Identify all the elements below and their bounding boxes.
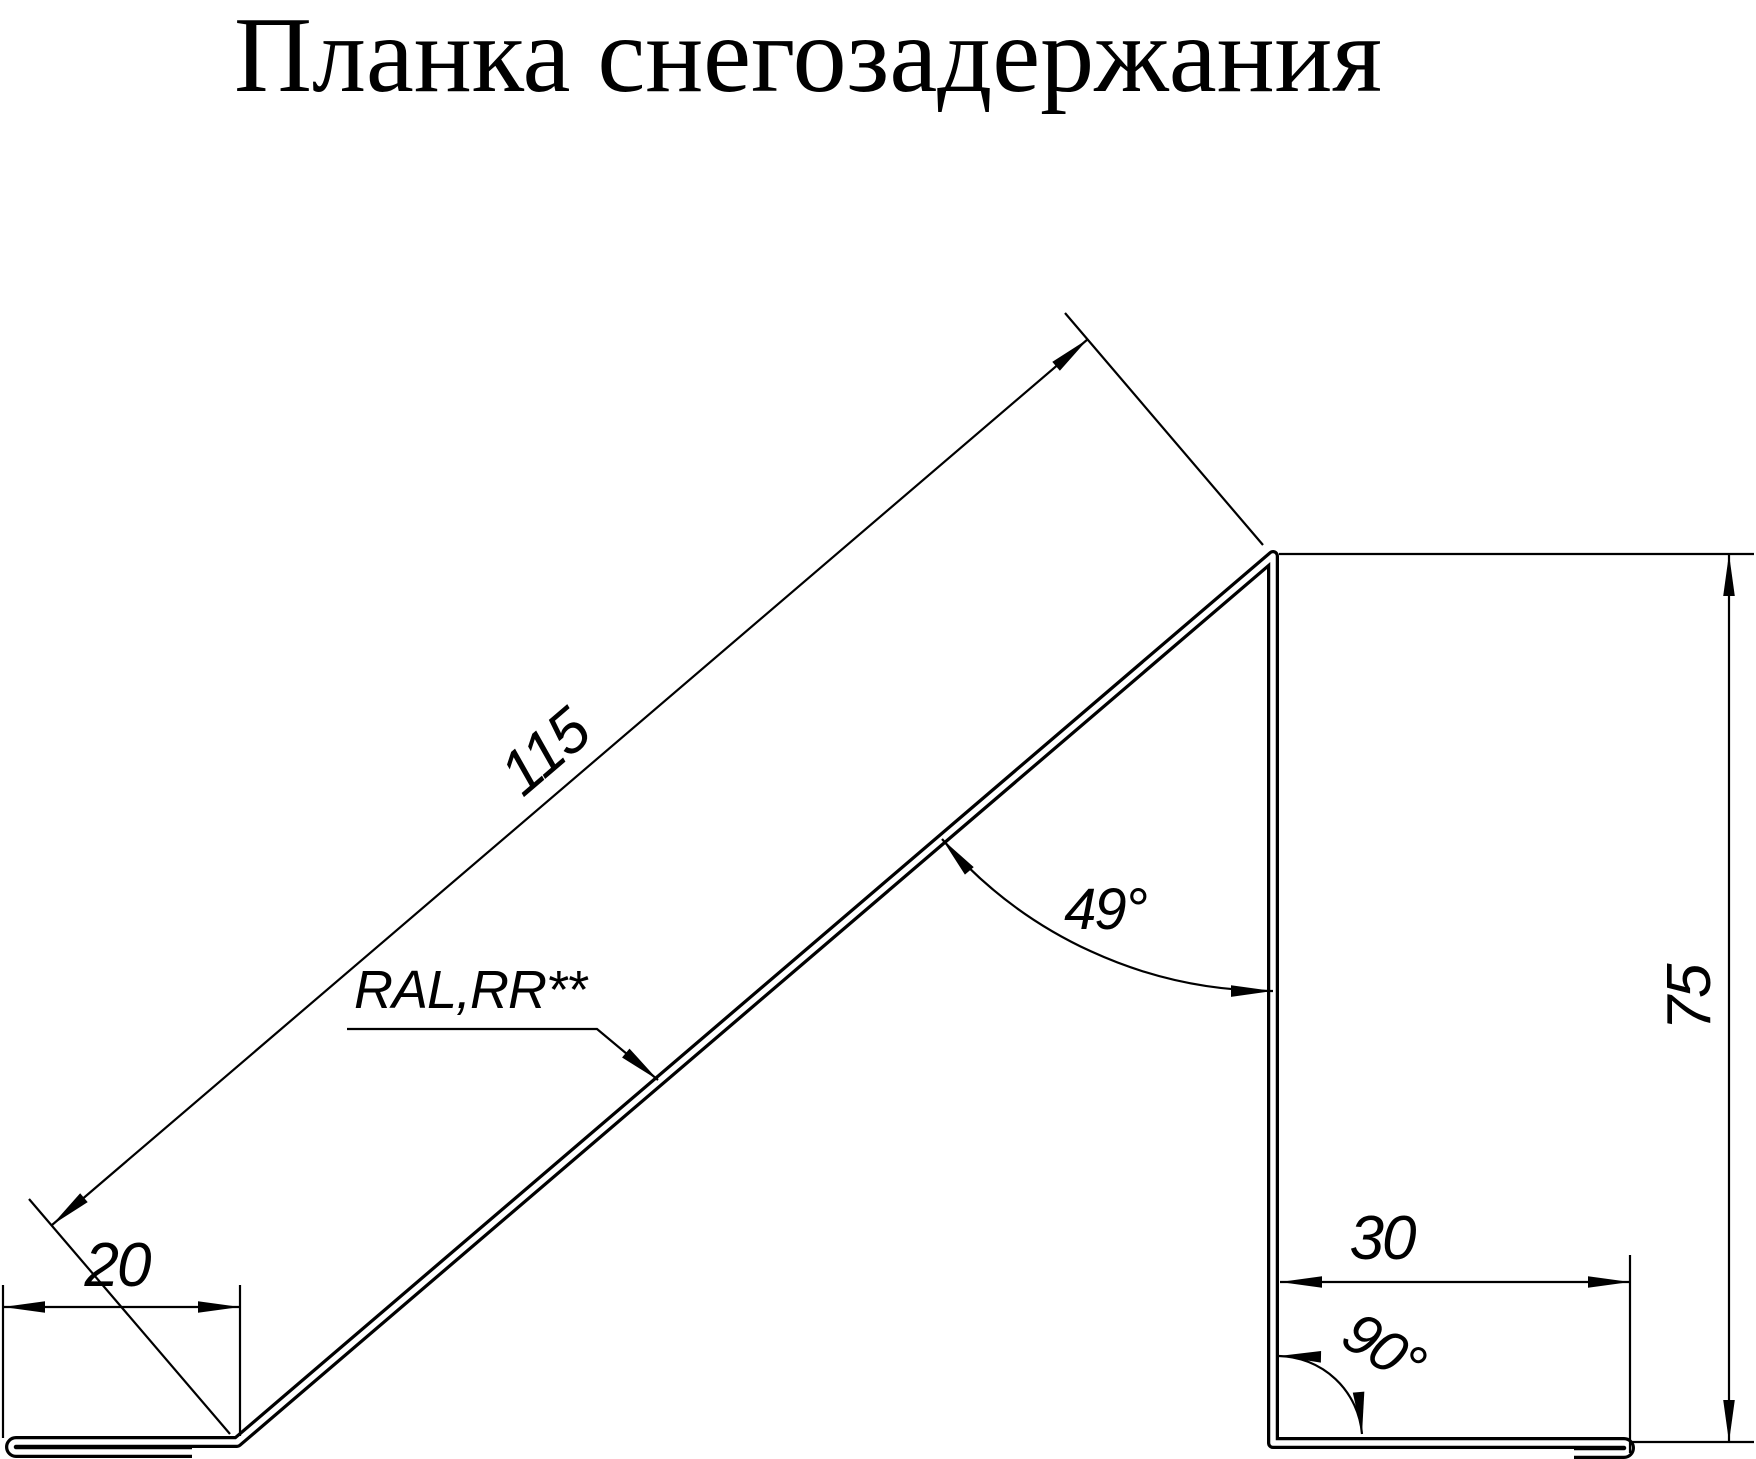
- dim-slope-angle-value: 49°: [1064, 877, 1147, 942]
- dim-height-value: 75: [1655, 963, 1724, 1030]
- drawing-labels: Планка снегозадержания 115 20 49° RAL,RR…: [84, 0, 1724, 1398]
- coating-leader-lines: [347, 1029, 658, 1080]
- technical-drawing-canvas: Планка снегозадержания 115 20 49° RAL,RR…: [0, 0, 1756, 1459]
- extension-line: [1065, 313, 1263, 545]
- coating-label: RAL,RR**: [354, 960, 589, 1020]
- leader-line: [347, 1029, 658, 1080]
- drawing-sheet: Планка снегозадержания 115 20 49° RAL,RR…: [0, 0, 1756, 1459]
- dim-bottom-angle-lines: [1279, 1356, 1362, 1434]
- angle-arc: [1279, 1356, 1362, 1434]
- dim-slope-length-value: 115: [487, 694, 604, 808]
- dim-bottom-angle-value: 90°: [1331, 1299, 1435, 1398]
- dim-bottom-flange-value: 30: [1350, 1204, 1416, 1273]
- dim-slope-length-lines: [29, 313, 1263, 1434]
- drawing-title: Планка снегозадержания: [234, 0, 1382, 115]
- dim-left-flange-value: 20: [84, 1231, 151, 1300]
- dimension-line: [52, 339, 1088, 1225]
